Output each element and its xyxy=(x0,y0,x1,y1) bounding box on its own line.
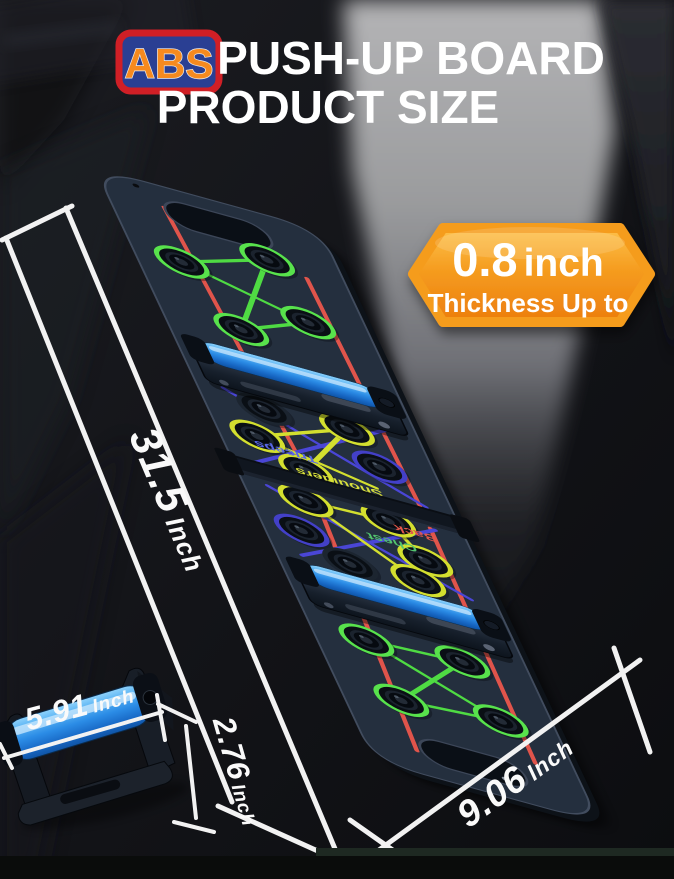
thickness-caption: Thickness Up to xyxy=(428,288,629,318)
thickness-value: 0.8 xyxy=(452,233,517,286)
thickness-badge: 0.8inch Thickness Up to xyxy=(413,227,650,322)
product-size-graphic: ABS PUSH-UP BOARD PRODUCT SIZE 0.8inch T… xyxy=(0,0,674,879)
abs-logo-text: ABS xyxy=(125,40,214,87)
page-subtitle: PRODUCT SIZE xyxy=(157,81,499,133)
page-title: PUSH-UP BOARD xyxy=(217,32,605,84)
bottom-strip-black xyxy=(0,856,674,879)
product-size-infographic: ABS PUSH-UP BOARD PRODUCT SIZE 0.8inch T… xyxy=(0,0,674,879)
thickness-unit: inch xyxy=(524,242,604,285)
